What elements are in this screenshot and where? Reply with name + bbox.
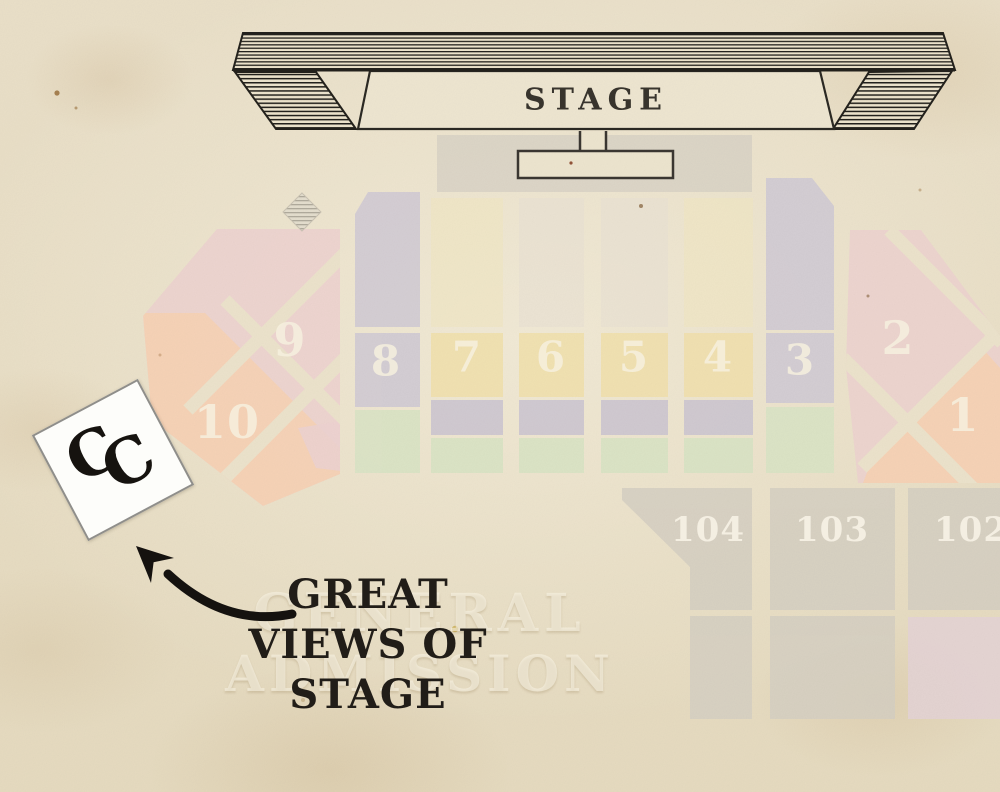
numbered-section-blocks [355, 333, 834, 407]
section-2-1-wedges [840, 225, 1000, 497]
section-label-2: 2 [881, 311, 914, 365]
banner-left-fold [235, 72, 356, 129]
arrow-head-icon [136, 546, 174, 583]
section-5-riser [601, 198, 668, 327]
section-label-4: 4 [703, 333, 733, 382]
section-6-riser [519, 198, 584, 327]
section-label-7: 7 [452, 333, 482, 382]
monogram-letter: C [92, 423, 165, 501]
section-label-104: 104 [671, 510, 745, 550]
section-risers [355, 178, 834, 330]
section-8-riser [355, 192, 420, 327]
section-label-1: 1 [946, 388, 979, 442]
paper-speck [569, 161, 572, 164]
section-label-8: 8 [371, 337, 401, 386]
section-3-riser [766, 178, 834, 330]
section-label-103: 103 [795, 510, 869, 550]
great-views-note: GREAT VIEWS OF STAGE [210, 570, 526, 720]
section-label-10: 10 [194, 395, 260, 449]
section-label-102: 102 [934, 510, 1000, 550]
note-line: VIEWS OF [210, 620, 526, 670]
seat-location-marker: C C [32, 379, 194, 541]
section-label-6: 6 [536, 333, 566, 382]
striped-diamond-icon [283, 193, 321, 231]
note-line: GREAT [210, 570, 526, 620]
note-line: STAGE [210, 670, 526, 720]
stage-label: STAGE [524, 83, 668, 118]
banner-right-fold [833, 71, 952, 129]
section-label-3: 3 [785, 336, 815, 385]
seating-map: GENERAL ADMISSION 9 10 2 1 8 7 6 5 4 3 1… [0, 0, 1000, 792]
section-label-9: 9 [273, 313, 306, 367]
section-4-riser [684, 198, 753, 327]
banner-top-band [233, 33, 955, 70]
section-label-5: 5 [619, 333, 649, 382]
pit-band [437, 135, 752, 192]
stage-thrust [437, 131, 752, 192]
row-strips [355, 400, 834, 473]
thrust-platform [518, 151, 673, 178]
section-7-riser [431, 198, 503, 327]
